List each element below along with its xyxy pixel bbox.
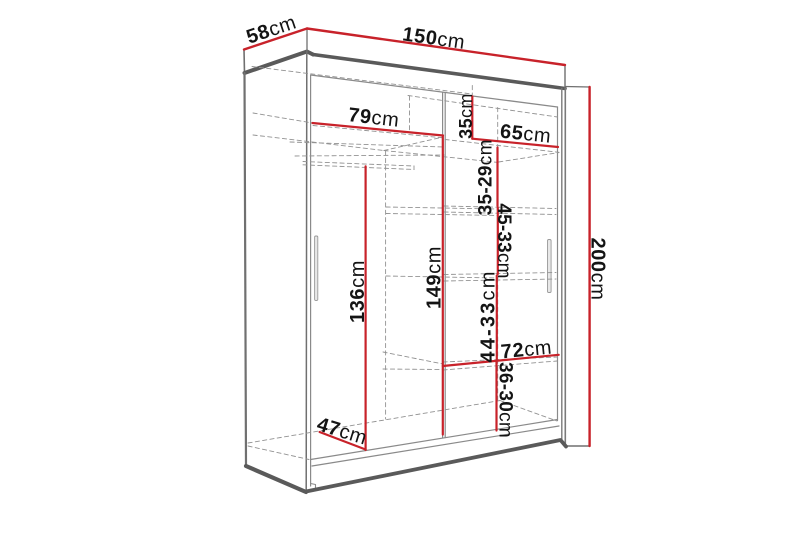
svg-text:45-33cm: 45-33cm — [494, 203, 515, 278]
svg-text:65cm: 65cm — [499, 121, 552, 148]
svg-text:58cm: 58cm — [244, 11, 300, 48]
svg-text:200cm: 200cm — [587, 237, 609, 300]
svg-text:36-30cm: 36-30cm — [495, 362, 516, 438]
svg-text:35cm: 35cm — [456, 93, 476, 139]
svg-text:72cm: 72cm — [500, 337, 553, 364]
svg-text:44-33cm: 44-33cm — [477, 269, 499, 362]
svg-text:149cm: 149cm — [424, 246, 446, 309]
svg-text:150cm: 150cm — [401, 23, 466, 54]
svg-text:136cm: 136cm — [347, 260, 369, 323]
svg-text:47cm: 47cm — [314, 413, 370, 449]
svg-text:35-29cm: 35-29cm — [475, 139, 496, 215]
